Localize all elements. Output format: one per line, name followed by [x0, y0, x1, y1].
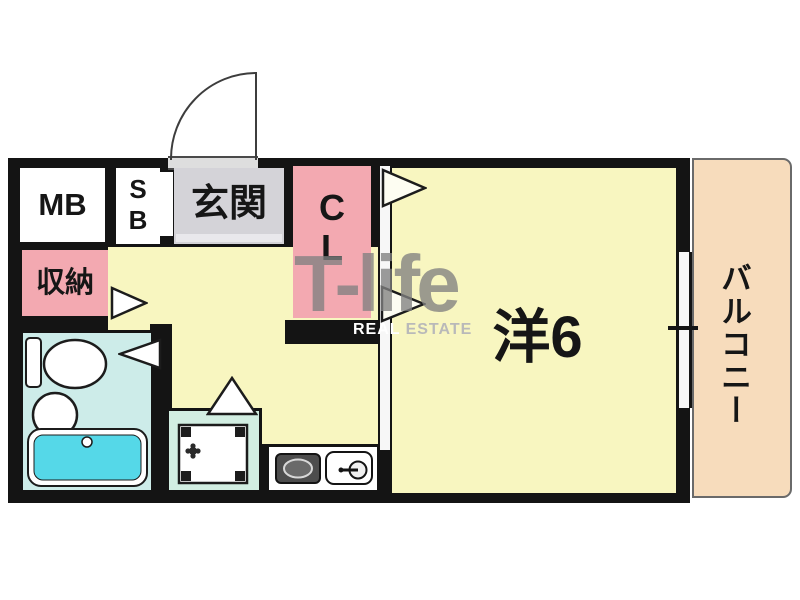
watermark-real: REAL [353, 321, 401, 338]
storage-label: 収納 [22, 250, 108, 316]
bathroom-door-swing-icon [118, 338, 162, 370]
laundry-door-swing-icon [206, 376, 258, 416]
balcony-label: バルコニー [706, 254, 756, 434]
storage-door-swing-icon [110, 286, 148, 320]
shoe-box-label-s: S [116, 174, 160, 205]
meter-box: MB [20, 168, 105, 242]
entrance-door-arc-icon [170, 72, 258, 160]
laundry-pan-icon [169, 411, 259, 490]
kitchen-sink-icon [326, 452, 372, 484]
entrance-label: 玄関 [174, 168, 284, 244]
shoe-box-door-gap [160, 172, 173, 236]
window [676, 252, 692, 408]
bathtub-drain-icon [82, 437, 92, 447]
kitchen-counter [266, 444, 380, 493]
toilet-tank-icon [26, 338, 41, 387]
closet-label-c: C [293, 188, 371, 228]
shoe-box-label-b: B [116, 205, 160, 236]
watermark-brand: T-life [294, 244, 457, 324]
toilet-bowl-icon [44, 340, 106, 388]
meter-box-label: MB [20, 168, 105, 242]
entrance-area: 玄関 [174, 168, 284, 244]
watermark-estate: ESTATE [406, 321, 473, 338]
entrance-step [176, 234, 282, 242]
room-door-swing-upper-icon [381, 168, 427, 208]
floor-plan: バルコニー MB S B 玄関 C L 収納 [0, 0, 800, 600]
laundry-pan [166, 408, 262, 493]
watermark-subtitle: REALESTATE [353, 321, 472, 339]
kitchen-fixtures [269, 447, 377, 490]
stove-icon [276, 454, 320, 483]
window-tick [668, 326, 698, 330]
storage-closet: 収納 [22, 250, 108, 316]
shoe-box: S B [116, 168, 160, 244]
